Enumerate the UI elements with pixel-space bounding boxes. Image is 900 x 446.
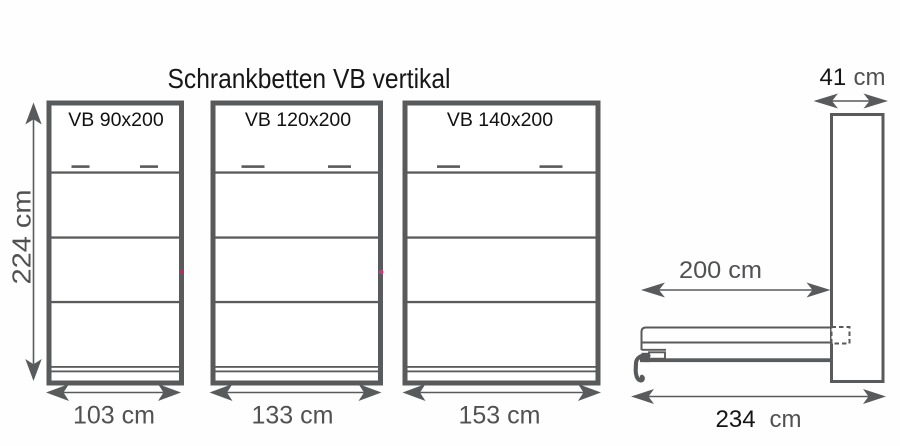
svg-text:133 cm: 133 cm (252, 402, 334, 430)
svg-text:cm: cm (854, 64, 886, 91)
svg-text:VB 120x200: VB 120x200 (245, 109, 351, 131)
svg-text:Schrankbetten VB vertikal: Schrankbetten VB vertikal (168, 63, 451, 94)
svg-text:VB 140x200: VB 140x200 (447, 109, 553, 131)
svg-text:103 cm: 103 cm (73, 402, 155, 430)
svg-text:153 cm: 153 cm (459, 402, 541, 430)
svg-text:cm: cm (770, 406, 802, 433)
svg-text:200 cm: 200 cm (679, 257, 762, 284)
svg-text:234: 234 (716, 406, 756, 433)
svg-text:VB 90x200: VB 90x200 (68, 109, 164, 131)
svg-text:224 cm: 224 cm (7, 190, 37, 285)
svg-text:41: 41 (820, 64, 847, 91)
